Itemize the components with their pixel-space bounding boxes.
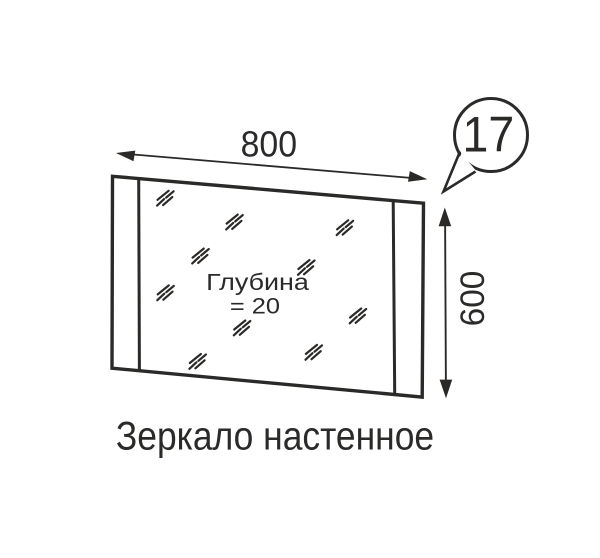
svg-text:Зеркало настенное: Зеркало настенное — [116, 415, 434, 459]
svg-text:800: 800 — [241, 124, 297, 164]
svg-text:= 20: = 20 — [230, 294, 280, 319]
svg-text:600: 600 — [454, 271, 493, 327]
svg-text:17: 17 — [463, 107, 515, 163]
svg-text:Глубина: Глубина — [206, 269, 310, 295]
